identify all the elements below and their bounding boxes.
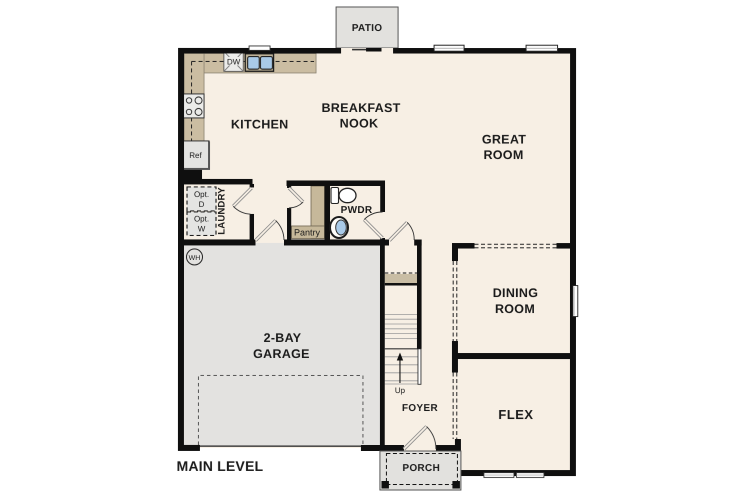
svg-text:WH: WH — [189, 255, 201, 262]
svg-text:Opt.: Opt. — [194, 214, 209, 223]
svg-text:DW: DW — [227, 57, 241, 66]
svg-text:Up: Up — [395, 386, 406, 395]
svg-text:D: D — [199, 200, 205, 209]
svg-text:Ref: Ref — [189, 151, 202, 160]
svg-text:PORCH: PORCH — [402, 463, 440, 474]
svg-text:PATIO: PATIO — [352, 23, 383, 34]
svg-text:Pantry: Pantry — [294, 227, 321, 237]
svg-text:FLEX: FLEX — [498, 407, 533, 422]
svg-text:NOOK: NOOK — [340, 116, 379, 130]
svg-text:GREAT: GREAT — [482, 133, 526, 147]
svg-text:LAUNDRY: LAUNDRY — [217, 187, 228, 235]
svg-text:DINING: DINING — [493, 286, 539, 300]
svg-text:MAIN LEVEL: MAIN LEVEL — [177, 458, 264, 474]
svg-text:KITCHEN: KITCHEN — [231, 118, 289, 132]
svg-text:BREAKFAST: BREAKFAST — [322, 101, 401, 115]
svg-text:GARAGE: GARAGE — [253, 347, 310, 361]
svg-text:2-BAY: 2-BAY — [264, 331, 302, 345]
svg-text:ROOM: ROOM — [495, 302, 535, 316]
svg-text:FOYER: FOYER — [402, 403, 438, 414]
svg-text:ROOM: ROOM — [483, 148, 523, 162]
svg-text:W: W — [198, 224, 206, 233]
svg-text:Opt.: Opt. — [194, 190, 209, 199]
svg-text:PWDR: PWDR — [341, 205, 373, 216]
